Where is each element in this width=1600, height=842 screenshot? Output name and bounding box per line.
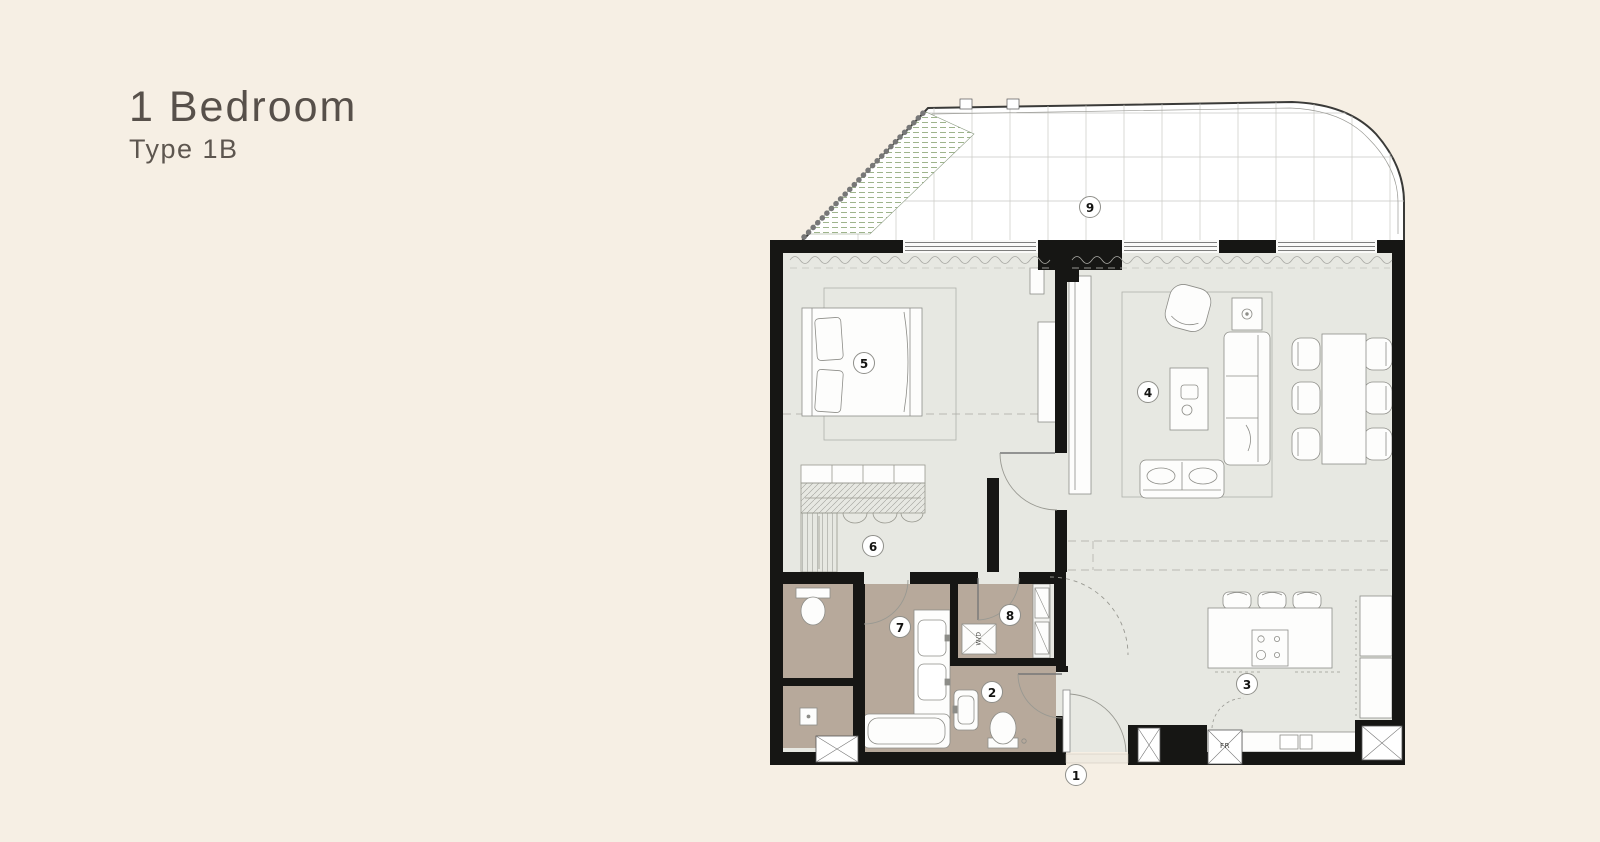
page-title: 1 Bedroom [129, 84, 357, 131]
floor-plan-drawing [760, 80, 1420, 795]
double-vanity [914, 610, 950, 722]
laundry-niche-cabinets [1033, 584, 1050, 658]
bedroom-shelf [1030, 268, 1044, 294]
cooktop [1252, 630, 1288, 666]
pillow [815, 317, 844, 361]
shaft [816, 736, 858, 762]
room-marker-4: 4 [1137, 381, 1159, 403]
shaft [1362, 726, 1402, 760]
balcony [790, 98, 1408, 242]
shaft [1138, 728, 1160, 762]
bathtub [863, 714, 950, 748]
window [1122, 240, 1219, 253]
side-table [1232, 298, 1262, 330]
window [1276, 240, 1377, 253]
powder-sink [953, 690, 978, 730]
room-marker-2: 2 [981, 681, 1003, 703]
room-marker-6: 6 [862, 535, 884, 557]
dining-set [1292, 334, 1392, 464]
windows [903, 240, 1377, 253]
bar-stools [1223, 592, 1321, 609]
room-marker-8: 8 [999, 604, 1021, 626]
room-marker-7: 7 [889, 616, 911, 638]
dining-table [1322, 334, 1366, 464]
sofa [1224, 332, 1270, 465]
page-subtitle: Type 1B [129, 134, 357, 165]
room-marker-5: 5 [853, 352, 875, 374]
floor-plan: 1 2 3 4 5 6 7 8 9 FR W/D [760, 80, 1420, 795]
brochure-page: { "page": { "background": "#f6efe4" }, "… [0, 0, 1600, 842]
pillow [815, 369, 844, 413]
tv-console [1069, 276, 1091, 494]
window [903, 240, 1038, 253]
room-marker-9: 9 [1079, 196, 1101, 218]
room-marker-3: 3 [1236, 673, 1258, 695]
fridge-label: FR [1218, 742, 1232, 750]
coffee-table [1170, 368, 1208, 430]
plan-title-block: 1 Bedroom Type 1B [129, 84, 357, 165]
washer-dryer-label: W/D [976, 629, 983, 649]
bedroom-console [1038, 322, 1056, 422]
kitchen-sink [1280, 735, 1312, 749]
room-marker-1: 1 [1065, 764, 1087, 786]
loveseat [1140, 460, 1224, 498]
water-heater [800, 708, 817, 725]
